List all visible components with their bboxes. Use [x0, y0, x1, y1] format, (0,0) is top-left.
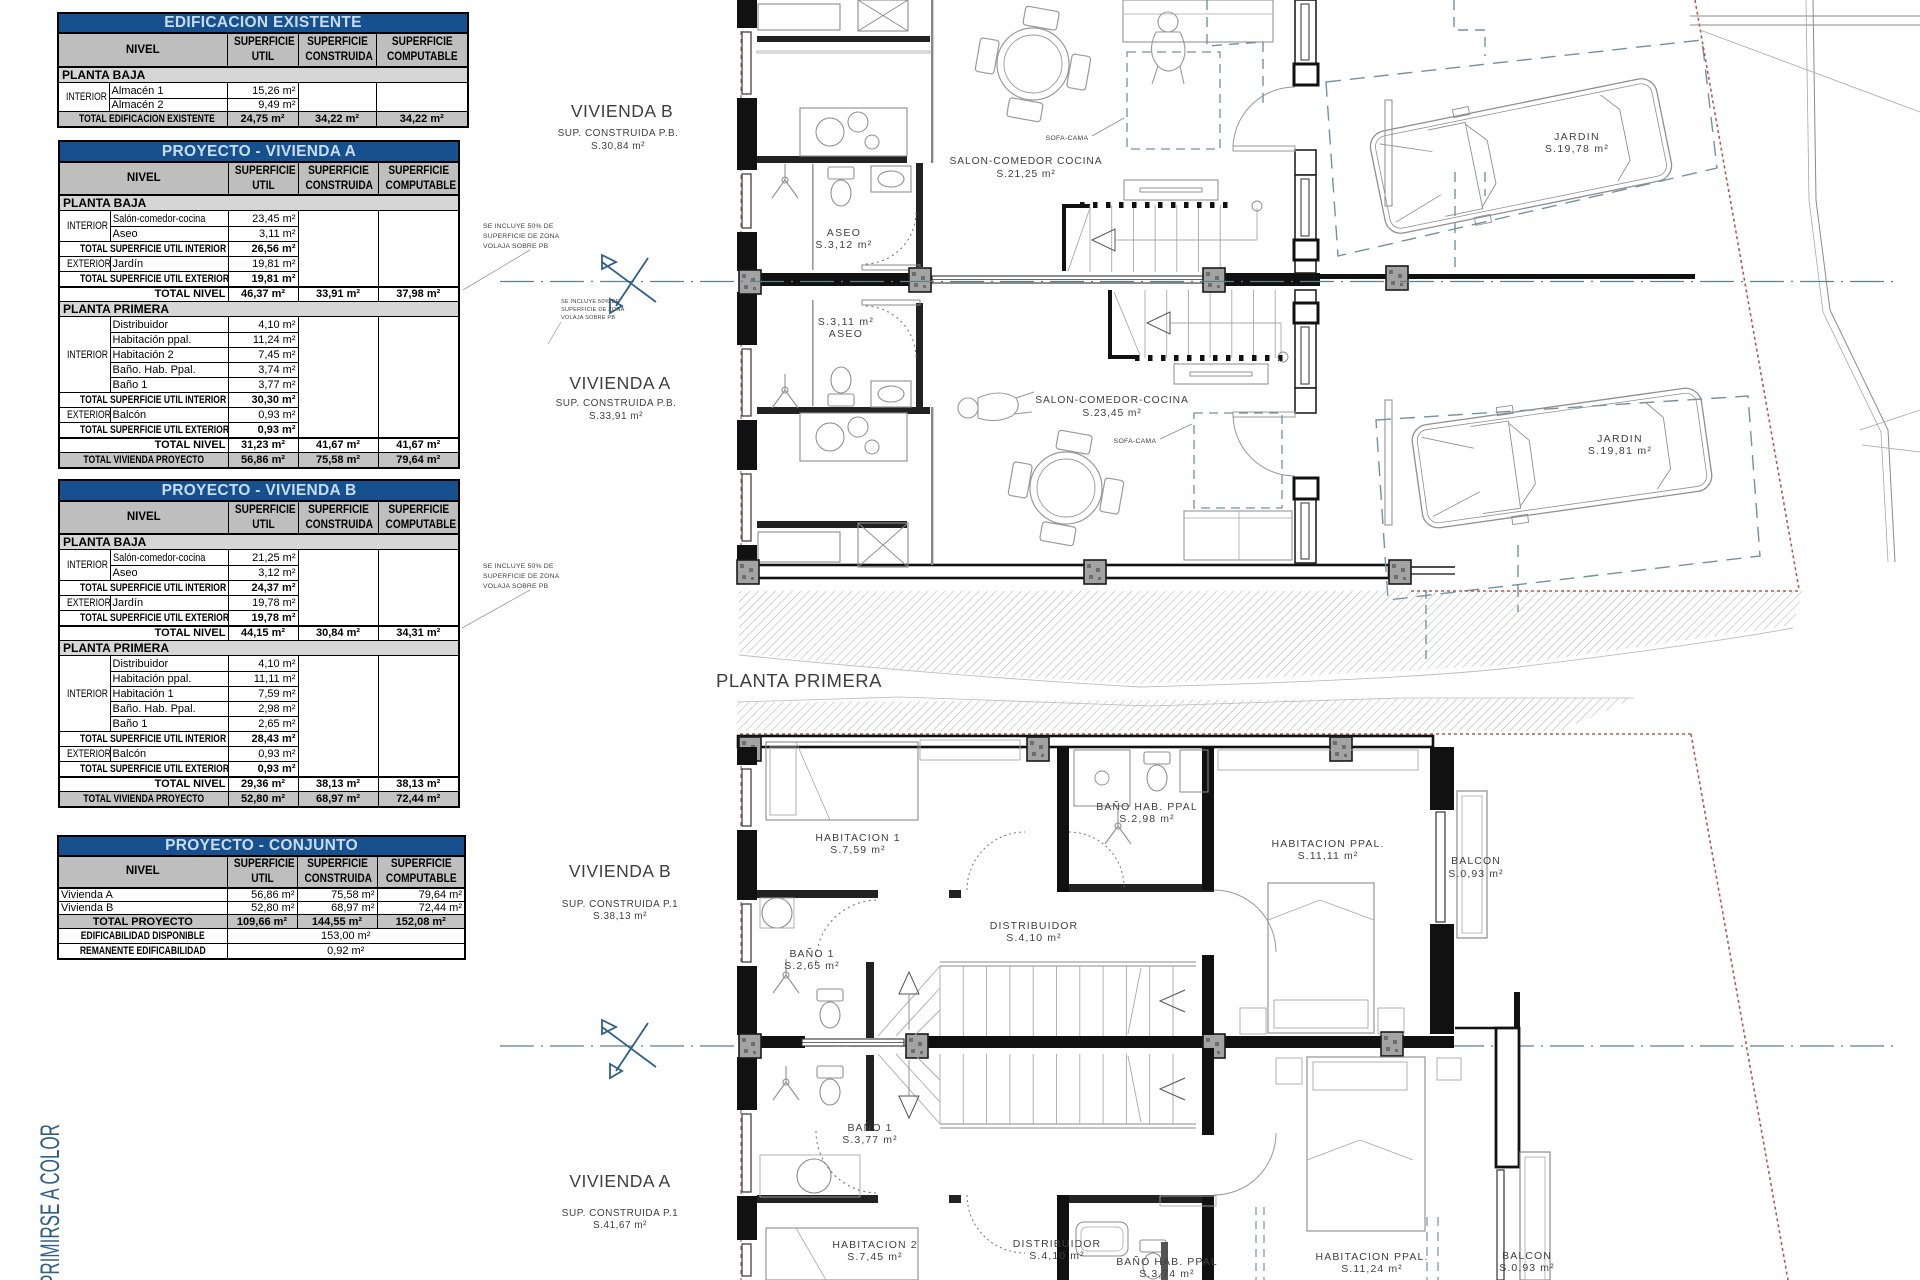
- svg-text:S.2,65 m²: S.2,65 m²: [784, 960, 839, 972]
- svg-text:BAÑO 1: BAÑO 1: [789, 947, 834, 960]
- svg-text:SE INCLUYE 50% DE: SE INCLUYE 50% DE: [483, 223, 554, 230]
- svg-text:SALON-COMEDOR COCINA: SALON-COMEDOR COCINA: [949, 156, 1102, 167]
- svg-text:BAÑO HAB. PPAL: BAÑO HAB. PPAL: [1096, 800, 1198, 813]
- svg-text:S.3,77 m²: S.3,77 m²: [842, 1134, 897, 1146]
- svg-text:ASEO: ASEO: [829, 328, 863, 340]
- svg-text:S.2,98 m²: S.2,98 m²: [1119, 813, 1174, 825]
- svg-text:SUPERFICIE DE ZONA: SUPERFICIE DE ZONA: [483, 573, 560, 580]
- svg-text:S.11,11 m²: S.11,11 m²: [1298, 850, 1359, 862]
- svg-text:VOLAJA SOBRE PB: VOLAJA SOBRE PB: [483, 243, 549, 250]
- svg-text:HABITACION 1: HABITACION 1: [815, 832, 900, 844]
- svg-text:S.21,25 m²: S.21,25 m²: [996, 169, 1055, 180]
- svg-text:S.4,10 m²: S.4,10 m²: [1029, 1250, 1084, 1262]
- svg-text:VOLAJA SOBRE PB: VOLAJA SOBRE PB: [483, 583, 549, 590]
- svg-text:VIVIENDA B: VIVIENDA B: [569, 861, 671, 881]
- svg-text:HABITACION PPAL.: HABITACION PPAL.: [1316, 1251, 1429, 1263]
- svg-text:HABITACION 2: HABITACION 2: [832, 1239, 917, 1251]
- svg-text:S.33,91 m²: S.33,91 m²: [589, 411, 643, 422]
- svg-text:DISTRIBUIDOR: DISTRIBUIDOR: [990, 920, 1078, 932]
- svg-text:HABITACION PPAL.: HABITACION PPAL.: [1272, 838, 1385, 850]
- svg-text:S.4,10 m²: S.4,10 m²: [1006, 932, 1061, 944]
- svg-text:S.41,67 m²: S.41,67 m²: [593, 1220, 647, 1231]
- svg-text:S.38,13 m²: S.38,13 m²: [593, 911, 647, 922]
- svg-text:S.7,45 m²: S.7,45 m²: [847, 1251, 902, 1263]
- svg-text:JARDIN: JARDIN: [1597, 433, 1643, 445]
- svg-text:SUPERFICIE DE ZONA: SUPERFICIE DE ZONA: [561, 307, 625, 313]
- svg-text:SUP. CONSTRUIDA P.1: SUP. CONSTRUIDA P.1: [562, 1208, 678, 1219]
- svg-text:BAÑO HAB. PPAL: BAÑO HAB. PPAL: [1116, 1255, 1218, 1268]
- svg-text:JARDIN: JARDIN: [1554, 131, 1600, 143]
- svg-text:BAÑO 1: BAÑO 1: [847, 1121, 892, 1134]
- svg-text:SALON-COMEDOR-COCINA: SALON-COMEDOR-COCINA: [1035, 395, 1189, 406]
- svg-text:BALCON: BALCON: [1502, 1250, 1552, 1262]
- svg-text:S.19,78 m²: S.19,78 m²: [1545, 143, 1609, 155]
- svg-text:SOFA-CAMA: SOFA-CAMA: [1046, 135, 1089, 142]
- svg-text:S.0,93 m²: S.0,93 m²: [1499, 1262, 1554, 1274]
- svg-text:VIVIENDA A: VIVIENDA A: [569, 373, 670, 393]
- svg-text:S.30,84 m²: S.30,84 m²: [591, 141, 645, 152]
- svg-text:PLANTA PRIMERA: PLANTA PRIMERA: [716, 670, 882, 691]
- svg-text:PRIMIRSE A COLOR: PRIMIRSE A COLOR: [35, 1124, 65, 1280]
- svg-text:VIVIENDA A: VIVIENDA A: [569, 1171, 670, 1191]
- svg-text:SUP. CONSTRUIDA P.B.: SUP. CONSTRUIDA P.B.: [556, 398, 677, 409]
- svg-text:S.3,12 m²: S.3,12 m²: [815, 239, 872, 251]
- svg-text:SE INCLUYE 50% DE: SE INCLUYE 50% DE: [561, 299, 620, 305]
- svg-text:SUP. CONSTRUIDA P.B.: SUP. CONSTRUIDA P.B.: [558, 128, 679, 139]
- svg-text:S.23,45 m²: S.23,45 m²: [1082, 408, 1141, 419]
- svg-text:S.19,81 m²: S.19,81 m²: [1588, 445, 1652, 457]
- svg-text:S.0,93 m²: S.0,93 m²: [1448, 868, 1503, 880]
- svg-text:SOFA-CAMA: SOFA-CAMA: [1114, 438, 1157, 445]
- svg-text:ASEO: ASEO: [827, 227, 861, 239]
- svg-text:BALCON: BALCON: [1451, 855, 1501, 867]
- svg-text:VIVIENDA B: VIVIENDA B: [571, 101, 673, 121]
- svg-text:SUP. CONSTRUIDA P.1: SUP. CONSTRUIDA P.1: [562, 899, 678, 910]
- svg-text:S.3,74 m²: S.3,74 m²: [1139, 1268, 1194, 1280]
- svg-text:S.3,11 m²: S.3,11 m²: [818, 316, 874, 328]
- svg-text:SUPERFICIE DE ZONA: SUPERFICIE DE ZONA: [483, 233, 560, 240]
- svg-text:DISTRIBUIDOR: DISTRIBUIDOR: [1013, 1238, 1101, 1250]
- svg-text:SE INCLUYE 50% DE: SE INCLUYE 50% DE: [483, 563, 554, 570]
- svg-text:S.11,24 m²: S.11,24 m²: [1341, 1263, 1403, 1275]
- svg-text:VOLAJA SOBRE PB: VOLAJA SOBRE PB: [561, 315, 615, 321]
- svg-text:S.7,59 m²: S.7,59 m²: [830, 844, 885, 856]
